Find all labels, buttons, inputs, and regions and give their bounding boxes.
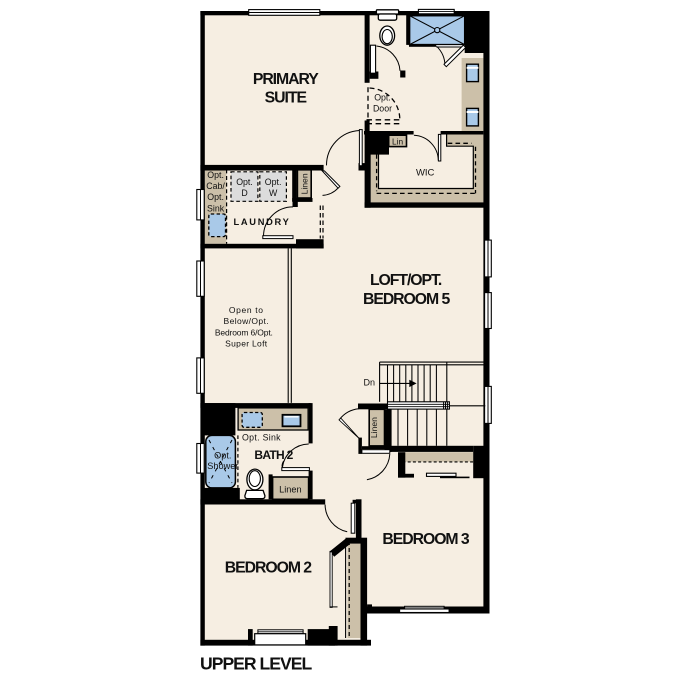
svg-text:W: W <box>269 188 278 198</box>
svg-text:Linen: Linen <box>299 173 309 194</box>
svg-text:Opt. Sink: Opt. Sink <box>242 432 281 442</box>
svg-text:Cab/: Cab/ <box>206 181 225 191</box>
svg-text:BATH 2: BATH 2 <box>254 448 293 462</box>
svg-text:Opt.: Opt. <box>236 177 253 187</box>
svg-text:SUITE: SUITE <box>265 90 307 107</box>
svg-text:BEDROOM 2: BEDROOM 2 <box>225 560 312 577</box>
svg-text:Opt.: Opt. <box>374 93 391 103</box>
svg-text:Opt.: Opt. <box>214 450 231 460</box>
svg-text:Shower: Shower <box>207 461 238 471</box>
svg-text:Opt.: Opt. <box>207 192 224 202</box>
svg-text:Below/Opt.: Below/Opt. <box>224 316 270 326</box>
svg-text:Sink: Sink <box>207 203 225 213</box>
svg-text:WIC: WIC <box>416 167 435 178</box>
svg-text:BEDROOM 5: BEDROOM 5 <box>363 291 450 308</box>
svg-text:BEDROOM 3: BEDROOM 3 <box>382 531 469 548</box>
svg-text:PRIMARY: PRIMARY <box>253 71 319 88</box>
svg-text:Super Loft: Super Loft <box>225 338 268 348</box>
svg-text:Lin: Lin <box>392 136 403 146</box>
svg-text:D: D <box>241 188 247 198</box>
svg-text:LAUNDRY: LAUNDRY <box>233 217 290 227</box>
svg-text:Opt.: Opt. <box>265 177 282 187</box>
svg-text:LOFT/OPT.: LOFT/OPT. <box>370 272 442 289</box>
svg-text:UPPER LEVEL: UPPER LEVEL <box>200 653 312 673</box>
svg-text:Linen: Linen <box>279 484 301 494</box>
svg-text:Open to: Open to <box>229 305 264 315</box>
svg-text:Dn: Dn <box>364 378 376 388</box>
svg-text:Door: Door <box>373 104 392 114</box>
svg-text:Bedroom 6/Opt.: Bedroom 6/Opt. <box>215 328 273 338</box>
svg-text:Opt.: Opt. <box>207 170 224 180</box>
svg-text:Linen: Linen <box>369 417 379 438</box>
